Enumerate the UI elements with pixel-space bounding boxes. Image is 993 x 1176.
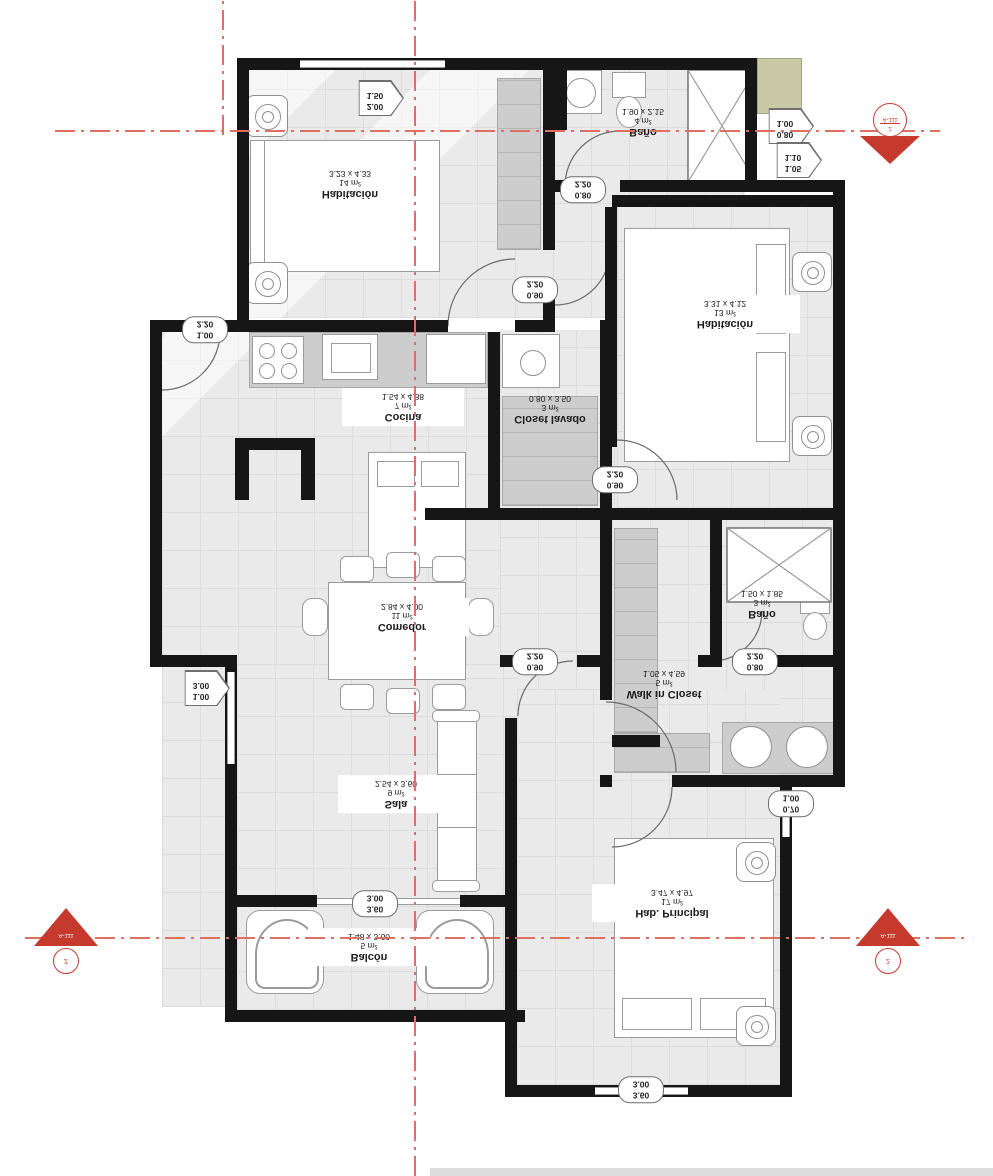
wall [225, 895, 237, 1022]
wall [612, 195, 833, 207]
wall [237, 320, 448, 332]
marker-number: 2 [64, 957, 68, 964]
wall [237, 58, 249, 332]
wall [600, 775, 612, 787]
room-label-sala: Sala 9 m² 2.54 x 3.60 [338, 775, 454, 813]
axis-line-horizontal [55, 130, 940, 132]
door-tag: 0.90 2.20 [512, 648, 558, 675]
room-label-cocina: Cocina 7 m² 1.54 x 4.88 [342, 388, 464, 426]
room-label-bano-2: Baño 3 m² 1.50 x 1.85 [702, 585, 822, 623]
room-area: 3 m² [707, 598, 817, 608]
door-tag: 1.00 2.20 [182, 316, 228, 343]
door-tag: 0.90 2.20 [592, 466, 638, 493]
marker-triangle-icon [860, 136, 920, 164]
elevation-marker: 2 A-111 [858, 103, 922, 165]
window-height: 1.00 [769, 793, 813, 804]
room-label-bano-1: Baño 4 m² 1.90 x 2.15 [588, 103, 698, 141]
room-label-comedor: Comedor 11 m² 2.84 x 4.00 [335, 598, 469, 636]
door-width: 0.90 [513, 290, 557, 301]
room-area: 11 m² [340, 611, 464, 621]
wall [612, 735, 660, 747]
door-width: 1.00 [183, 330, 227, 341]
room-area: 4 m² [593, 116, 693, 126]
opening-tag: 3.60 3.00 [618, 1076, 664, 1103]
door-height: 2.20 [561, 179, 605, 190]
room-label-habitacion-1: Habitación 14 m² 3.23 x 4.33 [280, 165, 420, 203]
axis-line-vertical [414, 0, 416, 1176]
marker-circle: 2 [875, 948, 901, 974]
room-name: Cocina [347, 411, 459, 424]
room-name: Comedor [340, 621, 464, 634]
room-name: Baño [707, 608, 817, 621]
door-arc [612, 787, 672, 847]
room-name: Hab. Principal [597, 907, 747, 920]
room-dims: 3.23 x 4.33 [285, 168, 415, 178]
wall [833, 185, 845, 787]
room-area: 9 m² [343, 788, 449, 798]
wall [505, 718, 517, 1097]
room-area: 13 m² [655, 308, 795, 318]
room-dims: 2.84 x 4.00 [340, 601, 464, 611]
opening-tag: 3.60 3.00 [352, 890, 398, 917]
marker-circle: 2 A-111 [873, 103, 907, 137]
room-label-walk-in-closet: Walk in Closet 5 m² 1.05 x 4.59 [600, 665, 728, 703]
room-dims: 3.47 x 4.97 [597, 887, 747, 897]
door-arc [448, 259, 515, 326]
room-area: 5 m² [605, 678, 723, 688]
window-width: 0.70 [769, 804, 813, 815]
room-dims: 3.31 x 4.12 [655, 298, 795, 308]
room-name: Balcón [313, 951, 425, 964]
wall [301, 438, 315, 500]
door-width: 0.80 [561, 190, 605, 201]
section-marker: A-111 2 [856, 908, 924, 980]
wall [555, 70, 567, 130]
room-label-hab-principal: Hab. Principal 17 m² 3.47 x 4.97 [592, 884, 752, 922]
wall [515, 320, 555, 332]
wall [745, 180, 845, 192]
marker-circle: 2 [53, 948, 79, 974]
room-dims: 1.54 x 4.88 [347, 391, 459, 401]
room-dims: 2.54 x 3.60 [343, 778, 449, 788]
door-arc [555, 250, 610, 305]
room-name: Sala [343, 798, 449, 811]
room-dims: 1.90 x 2.15 [593, 106, 693, 116]
door-width: 0.80 [733, 662, 777, 673]
wall [745, 58, 757, 192]
room-dims: 1.48 x 3.60 [313, 931, 425, 941]
room-name: Closet lavado [491, 413, 609, 426]
room-area: 3 m² [491, 403, 609, 413]
axis-line-vertical [222, 0, 224, 135]
door-height: 2.20 [513, 279, 557, 290]
room-area: 5 m² [313, 941, 425, 951]
wall [237, 895, 317, 907]
door-height: 2.20 [183, 319, 227, 330]
wall [543, 70, 555, 250]
room-label-habitacion-2: Habitación 13 m² 3.31 x 4.12 [650, 295, 800, 333]
window-size-tag: 0.70 1.00 [768, 790, 814, 817]
door-tag: 0.80 2.20 [560, 176, 606, 203]
marker-triangle-icon [856, 908, 920, 946]
door-width: 0.90 [513, 662, 557, 673]
wall [425, 508, 612, 520]
opening-width: 3.60 [619, 1090, 663, 1101]
wall [150, 320, 162, 667]
wall [225, 1010, 525, 1022]
axis-line-horizontal [25, 937, 965, 939]
room-dims: 1.50 x 1.85 [707, 588, 817, 598]
room-name: Habitación [655, 318, 795, 331]
opening-height: 3.00 [619, 1079, 663, 1090]
door-tag: 0.80 2.20 [732, 648, 778, 675]
room-area: 17 m² [597, 897, 747, 907]
door-height: 2.20 [513, 651, 557, 662]
room-dims: 0.80 x 3.50 [491, 393, 609, 403]
marker-number: 2 [880, 123, 900, 132]
room-area: 14 m² [285, 178, 415, 188]
door-tag: 0.90 2.20 [512, 276, 558, 303]
room-name: Habitación [285, 188, 415, 201]
door-width: 0.90 [593, 480, 637, 491]
window [300, 60, 445, 68]
opening-width: 3.60 [353, 904, 397, 915]
marker-sheet: A-111 [44, 932, 88, 938]
wall [150, 655, 237, 667]
marker-number: 2 [886, 957, 890, 964]
room-dims: 1.05 x 4.59 [605, 668, 723, 678]
floor-plan-canvas: Habitación 14 m² 3.23 x 4.33 Baño 4 m² 1… [0, 0, 993, 1176]
door-height: 2.20 [593, 469, 637, 480]
room-label-balcon: Balcón 5 m² 1.48 x 3.60 [308, 928, 430, 966]
wall [235, 438, 249, 500]
wall [620, 180, 757, 192]
room-label-closet-lavado: Closet lavado 3 m² 0.80 x 3.50 [486, 390, 614, 428]
opening-height: 3.00 [353, 893, 397, 904]
wall [672, 775, 792, 787]
door-height: 2.20 [733, 651, 777, 662]
marker-sheet: A-111 [866, 932, 910, 938]
section-marker: A-111 2 [34, 908, 102, 980]
room-area: 7 m² [347, 401, 459, 411]
wall [605, 508, 833, 520]
room-name: Walk in Closet [605, 688, 723, 701]
marker-triangle-icon [34, 908, 98, 946]
marker-sheet: A-111 [874, 114, 906, 122]
